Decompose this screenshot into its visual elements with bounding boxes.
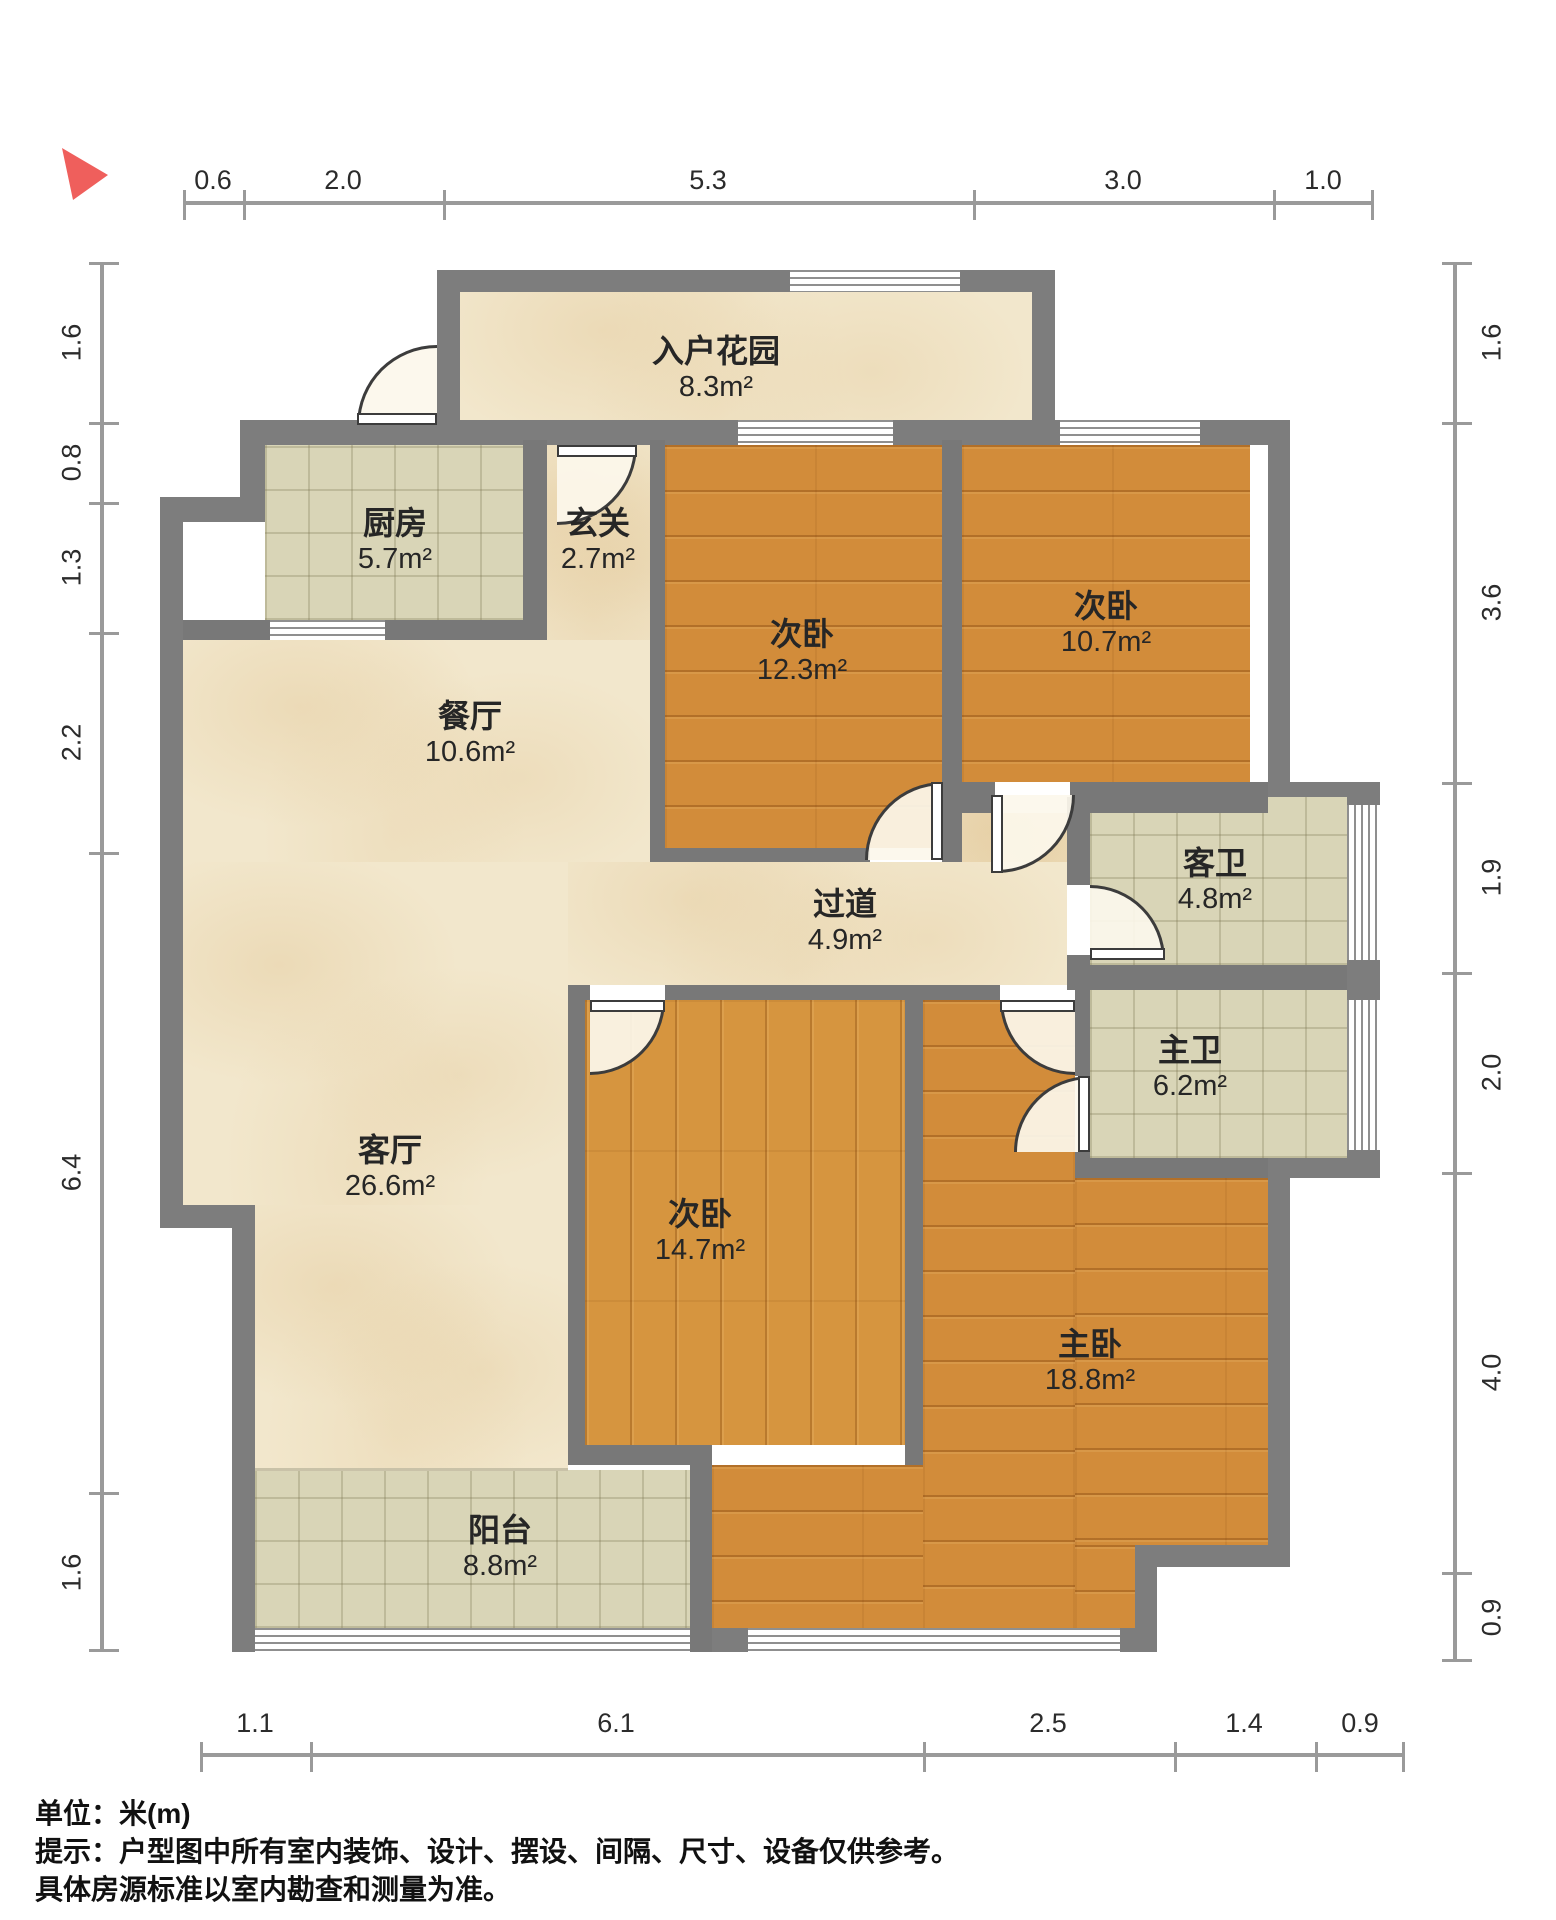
ruler-top-line <box>183 201 1373 205</box>
window <box>255 1628 690 1652</box>
wall <box>945 848 957 862</box>
wall <box>1075 1158 1268 1178</box>
room-name: 阳台 <box>463 1512 537 1549</box>
room-area: 8.8m² <box>463 1549 537 1583</box>
ruler-tick <box>1273 190 1276 220</box>
wall <box>385 620 523 640</box>
ruler-bottom-line <box>200 1753 1405 1757</box>
window-kitchen-opening <box>270 620 385 640</box>
window <box>748 1628 1120 1652</box>
ruler-tick <box>89 262 119 265</box>
dim-left-1: 1.6 <box>57 313 88 373</box>
dim-right-6: 0.9 <box>1477 1588 1508 1648</box>
label-bedroom-b: 次卧 10.7m² <box>1061 588 1151 659</box>
ruler-tick <box>89 422 119 425</box>
room-name: 玄关 <box>561 505 635 542</box>
wall <box>1067 965 1347 990</box>
dim-right-5: 4.0 <box>1477 1343 1508 1403</box>
dim-bottom-2: 6.1 <box>597 1708 635 1739</box>
ruler-tick <box>183 190 186 220</box>
room-area: 8.3m² <box>652 370 780 404</box>
ruler-tick <box>1442 782 1472 785</box>
window <box>790 270 960 292</box>
dim-right-1: 1.6 <box>1477 313 1508 373</box>
room-name: 次卧 <box>655 1196 745 1233</box>
note-tip-line1: 提示：户型图中所有室内装饰、设计、摆设、间隔、尺寸、设备仅供参考。 <box>35 1830 959 1870</box>
wall <box>1032 270 1055 425</box>
ruler-tick <box>89 852 119 855</box>
room-area: 2.7m² <box>561 542 635 576</box>
ruler-tick <box>89 1649 119 1652</box>
room-name: 主卫 <box>1153 1032 1227 1069</box>
label-dining: 餐厅 10.6m² <box>425 698 515 769</box>
dim-left-5: 6.4 <box>57 1143 88 1203</box>
room-master-bedroom <box>1075 1545 1135 1628</box>
note-unit-value: 米(m) <box>119 1798 191 1829</box>
wall <box>523 440 547 640</box>
window <box>738 420 893 445</box>
north-compass-icon <box>58 148 108 200</box>
label-bedroom-c: 次卧 14.7m² <box>655 1196 745 1267</box>
dim-left-6: 1.6 <box>57 1543 88 1603</box>
wall <box>183 620 270 640</box>
dim-top-5: 1.0 <box>1304 165 1342 196</box>
room-area: 4.8m² <box>1178 882 1252 916</box>
room-living-lower <box>255 1205 568 1470</box>
door-leaf <box>931 782 943 860</box>
ruler-tick <box>1315 1742 1318 1772</box>
dim-bottom-4: 1.4 <box>1225 1708 1263 1739</box>
wall <box>1067 955 1090 965</box>
wall <box>690 1465 712 1652</box>
label-guest-bath: 客卫 4.8m² <box>1178 845 1252 916</box>
room-name: 餐厅 <box>425 698 515 735</box>
ruler-tick <box>1442 422 1472 425</box>
room-area: 26.6m² <box>345 1169 435 1203</box>
wall <box>1268 1158 1380 1178</box>
label-entry-hall: 玄关 2.7m² <box>561 505 635 576</box>
ruler-tick <box>923 1742 926 1772</box>
wall <box>1268 1178 1290 1567</box>
dim-top-3: 5.3 <box>689 165 727 196</box>
wall <box>665 985 1000 1000</box>
room-area: 10.6m² <box>425 735 515 769</box>
window <box>1060 420 1200 445</box>
ruler-tick <box>1402 1742 1405 1772</box>
door-leaf <box>590 1000 665 1012</box>
dim-top-2: 2.0 <box>324 165 362 196</box>
ruler-tick <box>89 1492 119 1495</box>
ruler-tick <box>1371 190 1374 220</box>
wall <box>1268 420 1290 797</box>
label-balcony: 阳台 8.8m² <box>463 1512 537 1583</box>
door-leaf <box>1078 1076 1090 1152</box>
window <box>1347 805 1380 960</box>
wall <box>568 1000 585 1445</box>
room-area: 10.7m² <box>1061 625 1151 659</box>
ruler-tick <box>1442 972 1472 975</box>
note-unit-prefix: 单位： <box>35 1798 119 1829</box>
ruler-tick <box>1442 1659 1472 1662</box>
wall <box>1070 782 1268 813</box>
ruler-right-line <box>1453 262 1457 1662</box>
balcony-divider-line <box>255 1468 568 1471</box>
label-master-bath: 主卫 6.2m² <box>1153 1032 1227 1103</box>
room-name: 厨房 <box>358 505 432 542</box>
label-living: 客厅 26.6m² <box>345 1132 435 1203</box>
wall <box>905 1000 923 1465</box>
note-unit: 单位：米(m) <box>35 1792 191 1832</box>
ruler-tick <box>1442 262 1472 265</box>
dim-top-1: 0.6 <box>194 165 232 196</box>
room-area: 12.3m² <box>757 653 847 687</box>
ruler-tick <box>973 190 976 220</box>
room-master-bedroom <box>712 1465 923 1628</box>
room-area: 14.7m² <box>655 1233 745 1267</box>
room-name: 客卫 <box>1178 845 1252 882</box>
floor-plan-page: { "rooms": [ {"id":"entry-garden","name"… <box>0 0 1556 1920</box>
dim-right-2: 3.6 <box>1477 573 1508 633</box>
wall <box>1075 990 1090 1076</box>
wall <box>568 985 590 1000</box>
room-name: 客厅 <box>345 1132 435 1169</box>
label-entry-garden: 入户花园 8.3m² <box>652 333 780 404</box>
room-name: 次卧 <box>757 616 847 653</box>
room-name: 次卧 <box>1061 588 1151 625</box>
wall <box>650 848 870 862</box>
ruler-tick <box>243 190 246 220</box>
label-kitchen: 厨房 5.7m² <box>358 505 432 576</box>
wall <box>183 497 265 522</box>
dim-right-4: 2.0 <box>1477 1043 1508 1103</box>
room-dining <box>183 640 650 862</box>
dim-bottom-1: 1.1 <box>236 1708 274 1739</box>
wall <box>232 1205 255 1652</box>
wall <box>160 497 183 1228</box>
ruler-tick <box>443 190 446 220</box>
dim-bottom-5: 0.9 <box>1341 1708 1379 1739</box>
dim-right-3: 1.9 <box>1477 848 1508 908</box>
ruler-tick <box>1174 1742 1177 1772</box>
wall <box>1135 1545 1290 1567</box>
door-leaf <box>991 795 1003 873</box>
dim-top-4: 3.0 <box>1104 165 1142 196</box>
door-leaf <box>557 445 637 457</box>
door-leaf <box>1000 1000 1075 1012</box>
dim-left-2: 0.8 <box>57 433 88 493</box>
note-tip-line2: 具体房源标准以室内勘查和测量为准。 <box>35 1868 511 1908</box>
dim-bottom-3: 2.5 <box>1029 1708 1067 1739</box>
wall <box>568 1445 712 1465</box>
dim-left-4: 2.2 <box>57 713 88 773</box>
label-corridor: 过道 4.9m² <box>808 886 882 957</box>
window <box>1347 1000 1380 1150</box>
room-name: 过道 <box>808 886 882 923</box>
wall <box>650 440 665 862</box>
dim-left-3: 1.3 <box>57 538 88 598</box>
ruler-tick <box>1442 1572 1472 1575</box>
door-leaf <box>357 413 437 425</box>
ruler-tick <box>1442 1172 1472 1175</box>
label-bedroom-a: 次卧 12.3m² <box>757 616 847 687</box>
room-name: 入户花园 <box>652 333 780 370</box>
ruler-tick <box>89 632 119 635</box>
wall <box>942 440 962 862</box>
room-area: 18.8m² <box>1045 1363 1135 1397</box>
label-master-bedroom: 主卧 18.8m² <box>1045 1326 1135 1397</box>
ruler-tick <box>89 502 119 505</box>
room-area: 6.2m² <box>1153 1069 1227 1103</box>
room-area: 5.7m² <box>358 542 432 576</box>
ruler-tick <box>200 1742 203 1772</box>
wall <box>437 270 1055 292</box>
room-area: 4.9m² <box>808 923 882 957</box>
ruler-left-line <box>100 262 104 1652</box>
door-leaf <box>1090 948 1165 960</box>
room-name: 主卧 <box>1045 1326 1135 1363</box>
wall <box>437 270 460 445</box>
ruler-tick <box>310 1742 313 1772</box>
